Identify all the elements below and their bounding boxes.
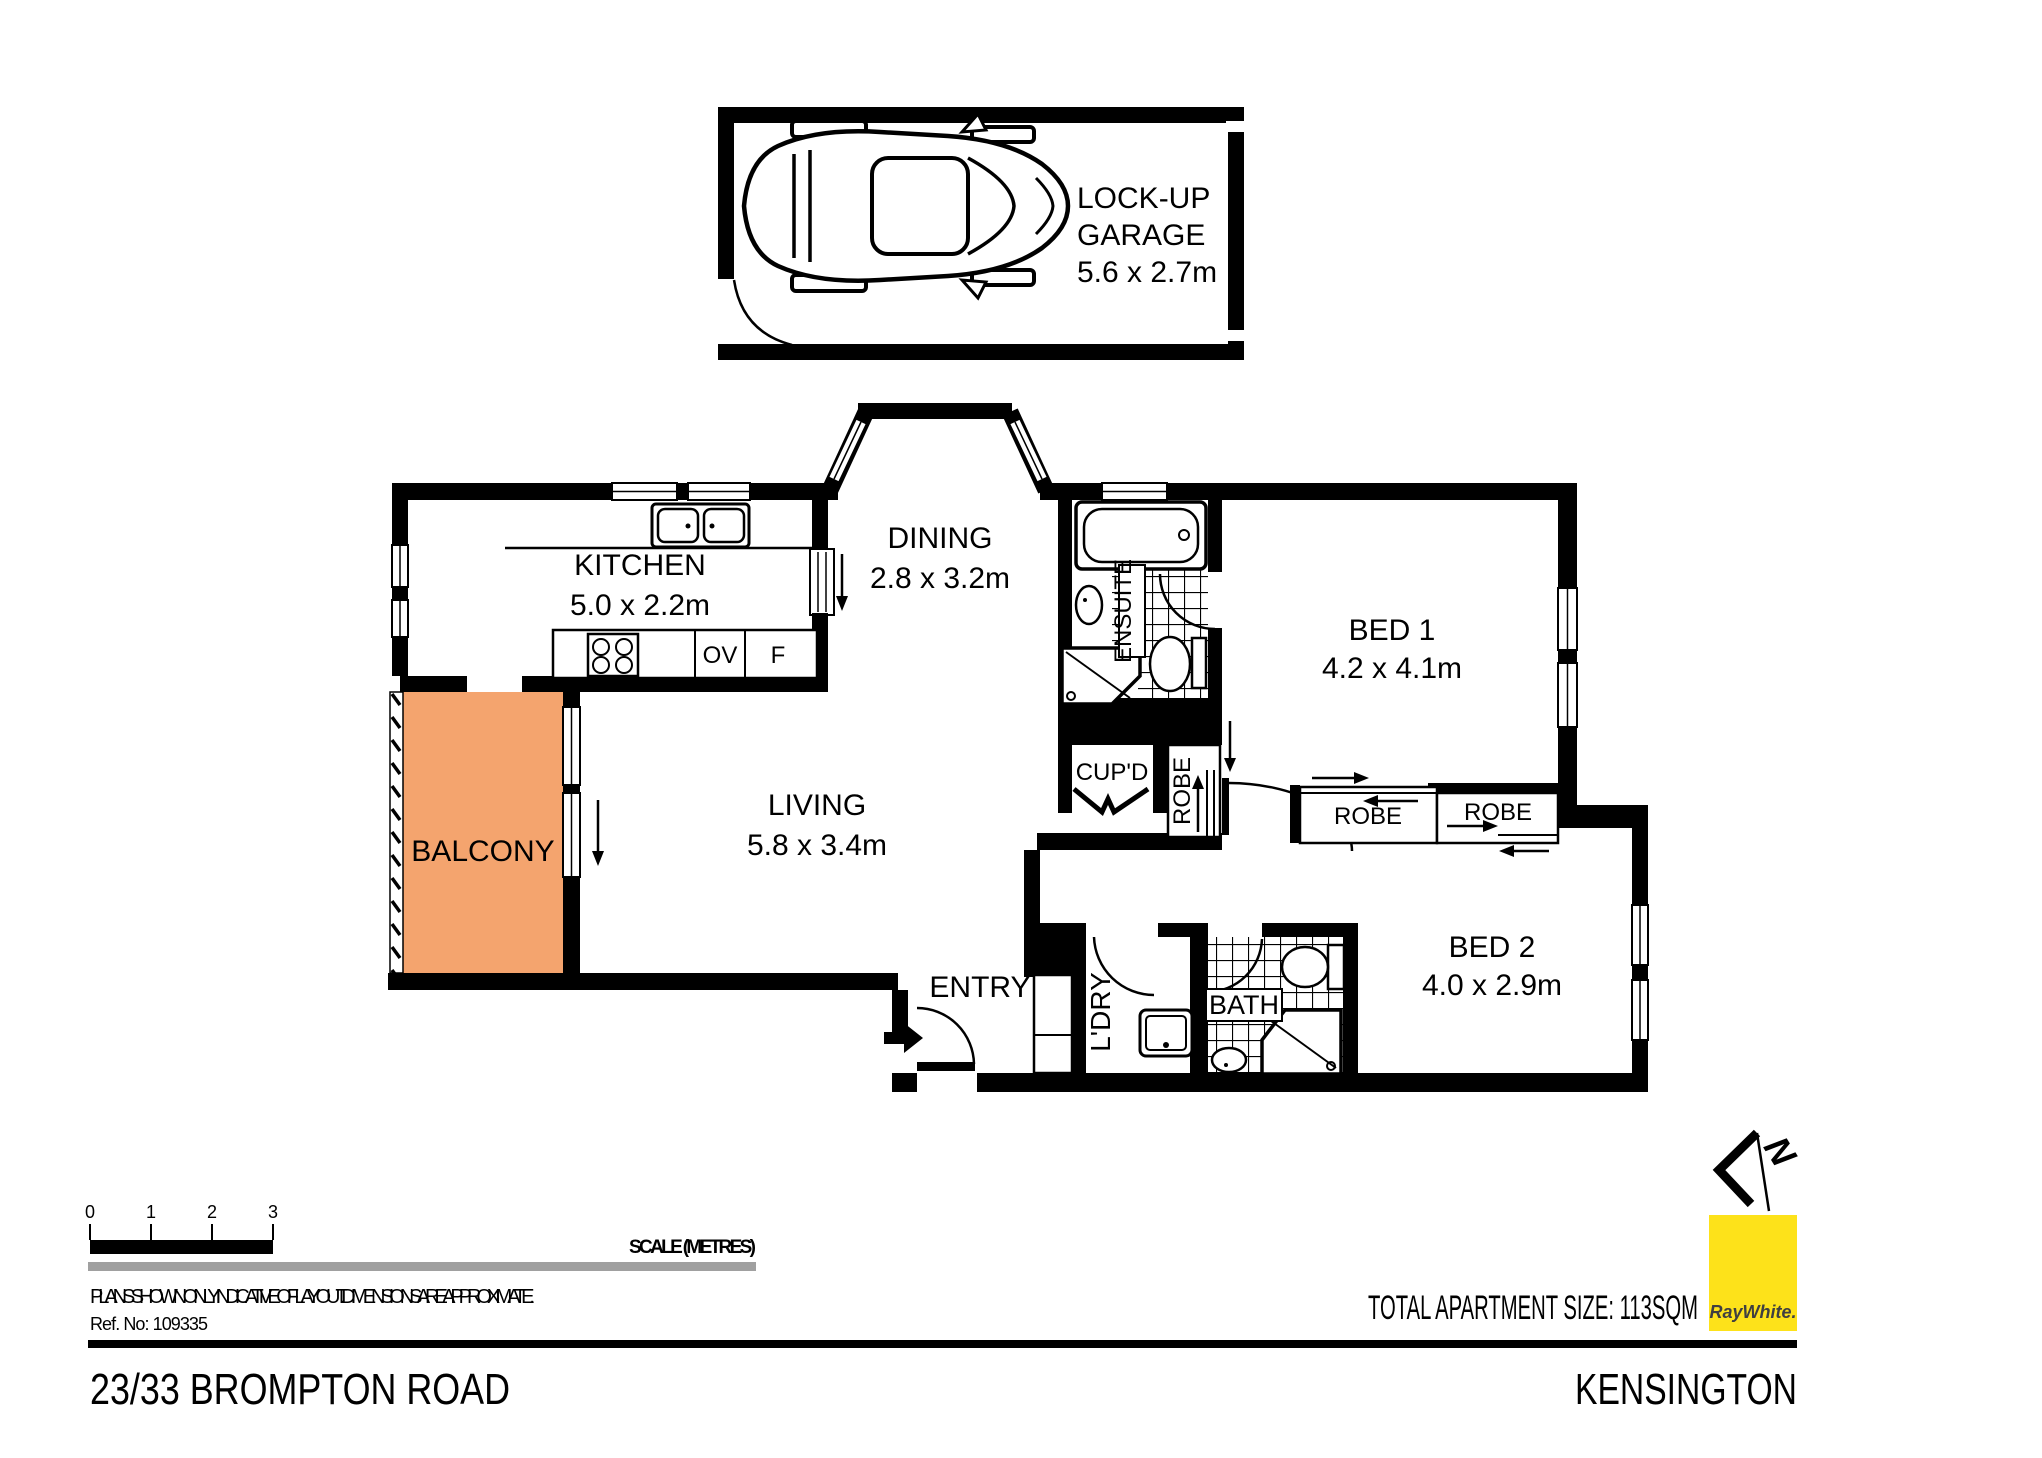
- raywhite-logo-text: RayWhite.: [1709, 1302, 1796, 1322]
- wall: [977, 1073, 1648, 1092]
- room-dims-bed1: 4.2 x 4.1m: [1322, 652, 1462, 685]
- window: [1632, 905, 1648, 965]
- room-label-bed2: BED 2: [1449, 931, 1536, 964]
- garage-label-line2: GARAGE: [1077, 219, 1205, 252]
- window: [1558, 663, 1577, 727]
- garage: LOCK-UP GARAGE 5.6 x 2.7m: [718, 107, 1244, 360]
- room-dims-living: 5.8 x 3.4m: [747, 829, 887, 862]
- room-label-kitchen: KITCHEN: [574, 549, 706, 582]
- total-apartment-size: TOTAL APARTMENT SIZE: 113SQM: [1368, 1289, 1698, 1327]
- room-label-ensuite: ENSUITE: [1110, 559, 1137, 663]
- door-swing: [917, 1008, 974, 1064]
- property-suburb: KENSINGTON: [1575, 1365, 1797, 1414]
- kitchen-sink-icon: [652, 504, 749, 547]
- wall: [1158, 923, 1208, 937]
- room-label-bed1: BED 1: [1349, 614, 1436, 647]
- wall: [1558, 500, 1577, 588]
- garage-door-swing: [734, 280, 792, 345]
- wall: [1558, 805, 1648, 828]
- wall: [1558, 650, 1577, 663]
- slide-arrow-down: [1224, 721, 1236, 772]
- bifold-doors: [1074, 789, 1148, 812]
- footer: 23/33 BROMPTON ROAD KENSINGTON: [90, 1365, 1797, 1414]
- room-label-living: LIVING: [768, 789, 866, 822]
- scale-tick-1: 1: [146, 1202, 156, 1222]
- scale-tick-2: 2: [207, 1202, 217, 1222]
- toilet-icon: [1150, 637, 1206, 691]
- window: [392, 545, 408, 587]
- garage-wall-right: [1228, 107, 1244, 360]
- door-leaf: [1222, 778, 1229, 835]
- floor-plan-page: LOCK-UP GARAGE 5.6 x 2.7m: [0, 0, 2042, 1458]
- room-label-dining: DINING: [888, 522, 993, 555]
- sliding-door: [563, 793, 604, 877]
- basin-icon: [1212, 1048, 1246, 1072]
- room-dims-dining: 2.8 x 3.2m: [870, 562, 1010, 595]
- room-labels: KITCHEN 5.0 x 2.2m DINING 2.8 x 3.2m LIV…: [411, 522, 1562, 1004]
- wall: [563, 692, 580, 707]
- footer-divider: [88, 1340, 1797, 1348]
- scale-bar: 0 1 2 3 SCALE (METRES) PLANS SHOWN ONLY …: [85, 1202, 756, 1334]
- reference-number: Ref. No: 109335: [90, 1314, 208, 1334]
- room-dims-kitchen: 5.0 x 2.2m: [570, 589, 710, 622]
- car-icon: [744, 114, 1068, 298]
- wall: [563, 877, 580, 973]
- scale-bar-black: [90, 1240, 273, 1254]
- garage-wall-left: [718, 107, 734, 279]
- appliance-label-oven: OV: [703, 642, 738, 669]
- wall: [392, 483, 612, 500]
- wall: [392, 637, 408, 676]
- bay-window: [830, 403, 1046, 490]
- north-compass-icon: N: [1719, 1129, 1805, 1211]
- room-label-laundry: L'DRY: [1085, 972, 1116, 1052]
- appliance-label-fridge: F: [771, 642, 786, 669]
- slide-arrow-left: [1499, 845, 1549, 857]
- balcony-rail-hatch: [390, 692, 403, 973]
- summary-row: TOTAL APARTMENT SIZE: 113SQM RayWhite.: [1368, 1215, 1797, 1331]
- wall: [392, 587, 408, 600]
- sliding-door: [810, 549, 848, 615]
- garage-wall-bottom: [718, 344, 1244, 360]
- garage-dims: 5.6 x 2.7m: [1077, 256, 1217, 289]
- window: [563, 707, 580, 785]
- scale-title: SCALE (METRES): [629, 1237, 756, 1258]
- laundry-tub-icon: [1140, 1010, 1192, 1056]
- property-address: 23/33 BROMPTON ROAD: [90, 1365, 510, 1414]
- wall: [812, 487, 828, 551]
- disclaimer-text: PLANS SHOWN ONLY INDICATIVE OF LAYOUT. D…: [90, 1286, 535, 1308]
- window: [1558, 588, 1577, 650]
- linen-cupboard: [1034, 975, 1072, 1073]
- wall: [677, 483, 688, 500]
- slide-arrow-right: [1312, 772, 1369, 784]
- room-label-entry: ENTRY: [929, 971, 1030, 1004]
- wall: [1167, 483, 1577, 500]
- room-label-robe-hall: ROBE: [1169, 757, 1196, 825]
- window: [612, 483, 677, 500]
- ensuite: ENSUITE: [1062, 502, 1215, 706]
- room-label-robe-bed2: ROBE: [1464, 799, 1532, 826]
- wall: [1632, 828, 1648, 905]
- room-label-balcony: BALCONY: [411, 835, 554, 868]
- scale-tick-0: 0: [85, 1202, 95, 1222]
- window: [1102, 483, 1167, 500]
- room-label-bath: BATH: [1209, 990, 1279, 1020]
- wall: [573, 973, 898, 990]
- wall: [1632, 965, 1648, 980]
- room-dims-bed2: 4.0 x 2.9m: [1422, 969, 1562, 1002]
- floor-plan-svg: LOCK-UP GARAGE 5.6 x 2.7m: [0, 0, 2042, 1458]
- window: [1632, 980, 1648, 1040]
- wall: [1558, 727, 1577, 805]
- scale-tick-3: 3: [268, 1202, 278, 1222]
- scale-gray-rule: [88, 1262, 756, 1271]
- wall: [1072, 923, 1086, 1073]
- wall: [1058, 714, 1222, 745]
- raywhite-logo: RayWhite.: [1709, 1215, 1797, 1331]
- toilet-icon: [1282, 945, 1344, 989]
- wall: [1030, 923, 1072, 975]
- room-label-cupboard: CUP'D: [1076, 759, 1149, 786]
- bathroom: BATH: [1206, 937, 1344, 1074]
- wall: [1208, 628, 1222, 714]
- room-label-robe-bed1: ROBE: [1334, 803, 1402, 830]
- wall: [563, 785, 580, 793]
- wall: [400, 676, 467, 692]
- wall: [1153, 745, 1167, 813]
- wall: [892, 1073, 917, 1092]
- garage-wall-notch: [1226, 330, 1244, 341]
- balcony-floor: [403, 692, 563, 973]
- window: [392, 600, 408, 637]
- wall: [1208, 500, 1222, 572]
- garage-wall-notch: [1226, 121, 1244, 132]
- window: [688, 483, 750, 500]
- wall: [388, 973, 580, 990]
- wall: [1290, 785, 1300, 843]
- wall: [392, 500, 408, 545]
- garage-label-line1: LOCK-UP: [1077, 182, 1210, 215]
- bathtub-icon: [1076, 502, 1206, 569]
- basin-icon: [1076, 586, 1102, 624]
- wall: [1040, 483, 1102, 500]
- door-leaf: [917, 1062, 975, 1071]
- wall: [1058, 745, 1072, 813]
